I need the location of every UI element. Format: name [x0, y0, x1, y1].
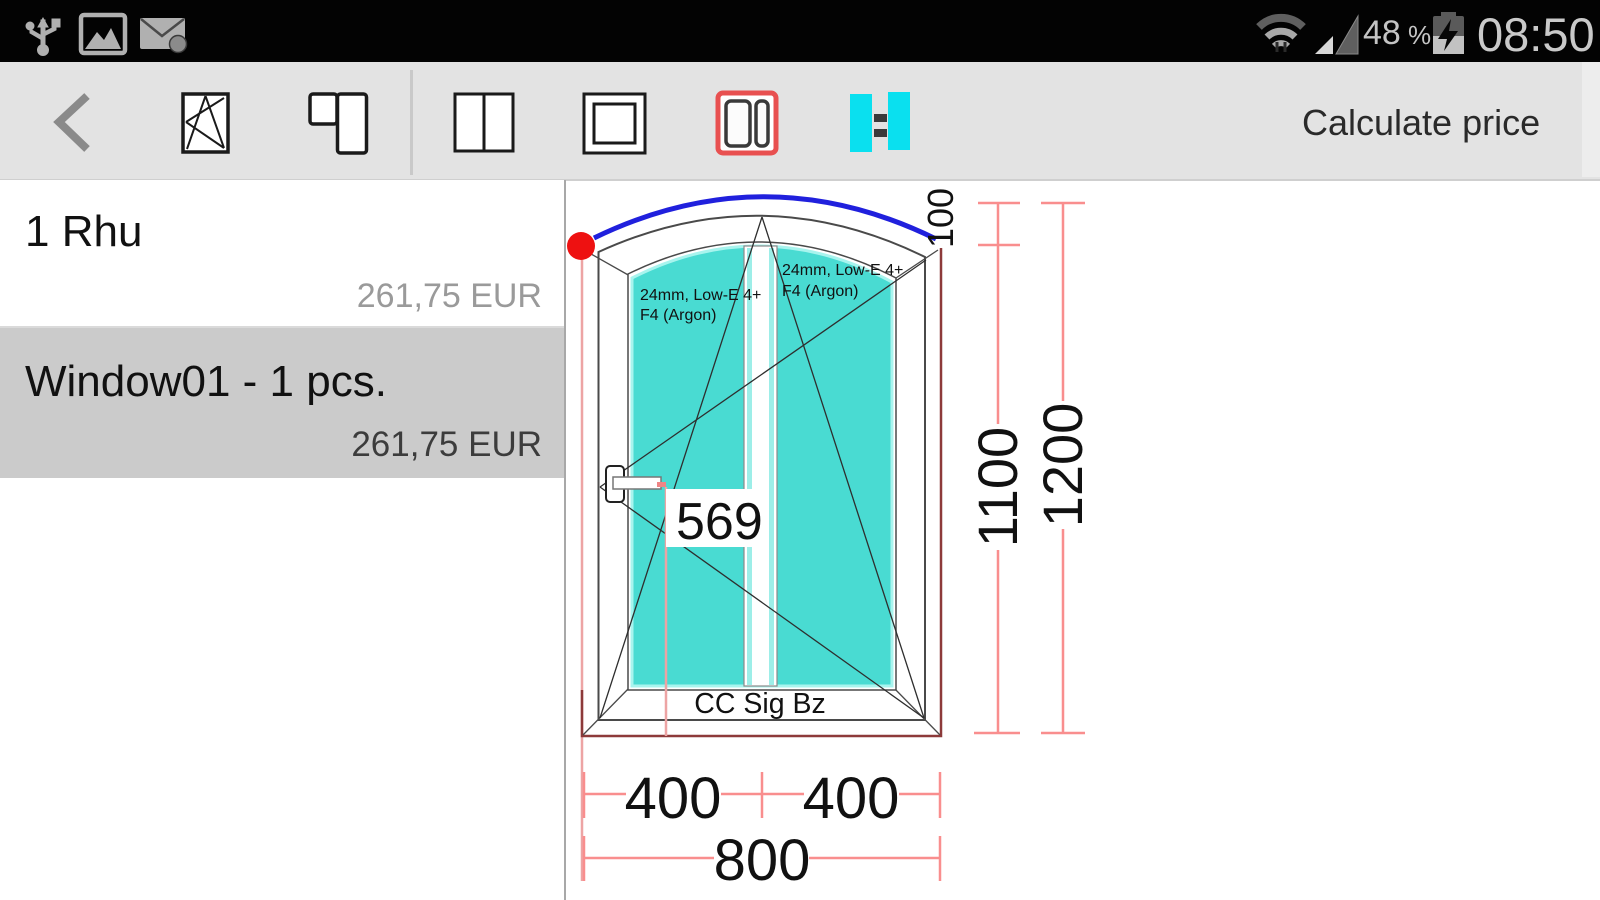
svg-text:1200: 1200: [1031, 403, 1094, 528]
svg-text:569: 569: [676, 493, 763, 551]
svg-text:CC Sig Bz: CC Sig Bz: [694, 688, 825, 720]
svg-text:24mm, Low-E 4+: 24mm, Low-E 4+: [782, 262, 903, 279]
svg-text:800: 800: [714, 828, 811, 893]
svg-text:400: 400: [625, 766, 722, 831]
svg-text:F4 (Argon): F4 (Argon): [782, 283, 858, 300]
svg-text:24mm, Low-E 4+: 24mm, Low-E 4+: [640, 287, 761, 304]
svg-text:100: 100: [920, 188, 961, 248]
svg-text:1100: 1100: [966, 427, 1029, 547]
svg-text:400: 400: [803, 766, 900, 831]
svg-text:F4 (Argon): F4 (Argon): [640, 307, 716, 324]
